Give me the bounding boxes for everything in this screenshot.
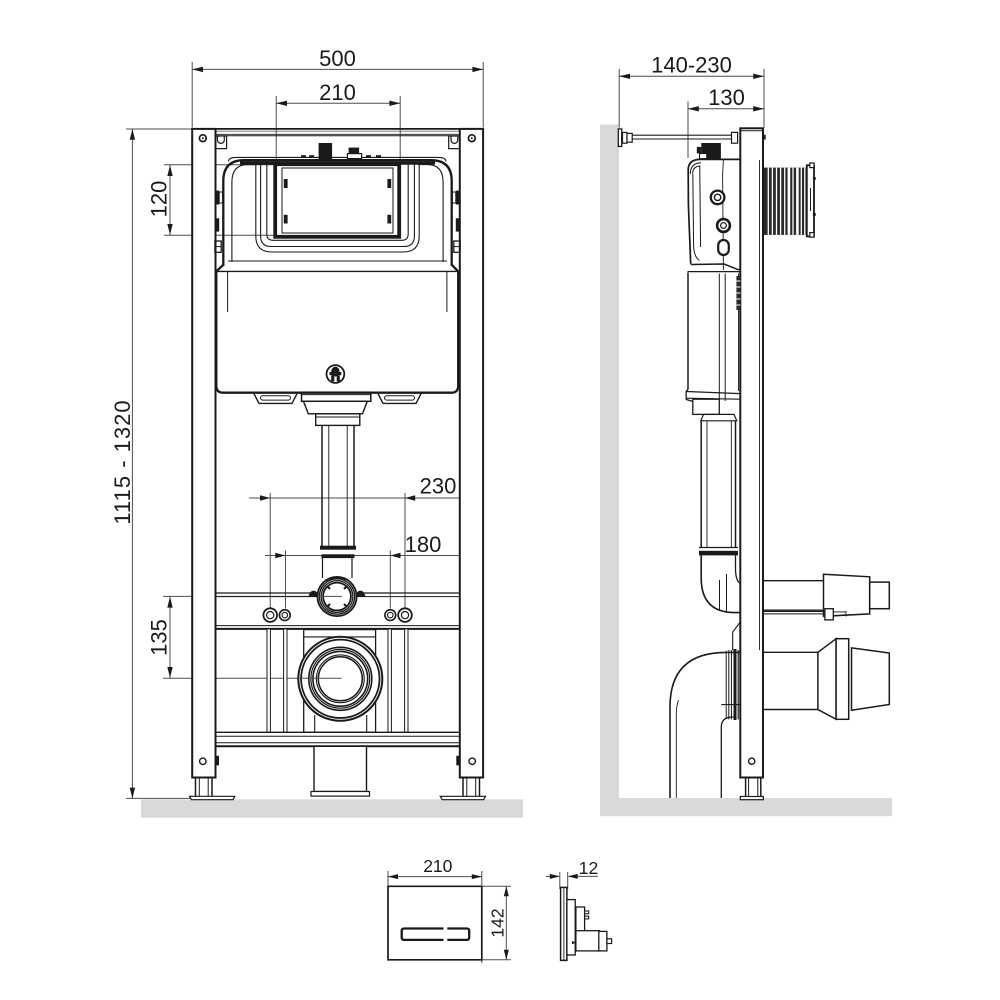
svg-text:140-230: 140-230	[651, 52, 732, 77]
svg-text:180: 180	[405, 532, 442, 557]
svg-text:1115 - 1320: 1115 - 1320	[110, 399, 135, 524]
svg-text:120: 120	[147, 181, 172, 218]
svg-text:230: 230	[420, 474, 457, 499]
svg-text:130: 130	[708, 85, 745, 110]
svg-text:142: 142	[487, 908, 507, 937]
svg-text:135: 135	[147, 619, 172, 656]
svg-text:210: 210	[319, 80, 356, 105]
svg-text:12: 12	[579, 858, 598, 878]
svg-text:500: 500	[319, 46, 356, 71]
svg-text:210: 210	[423, 856, 452, 876]
